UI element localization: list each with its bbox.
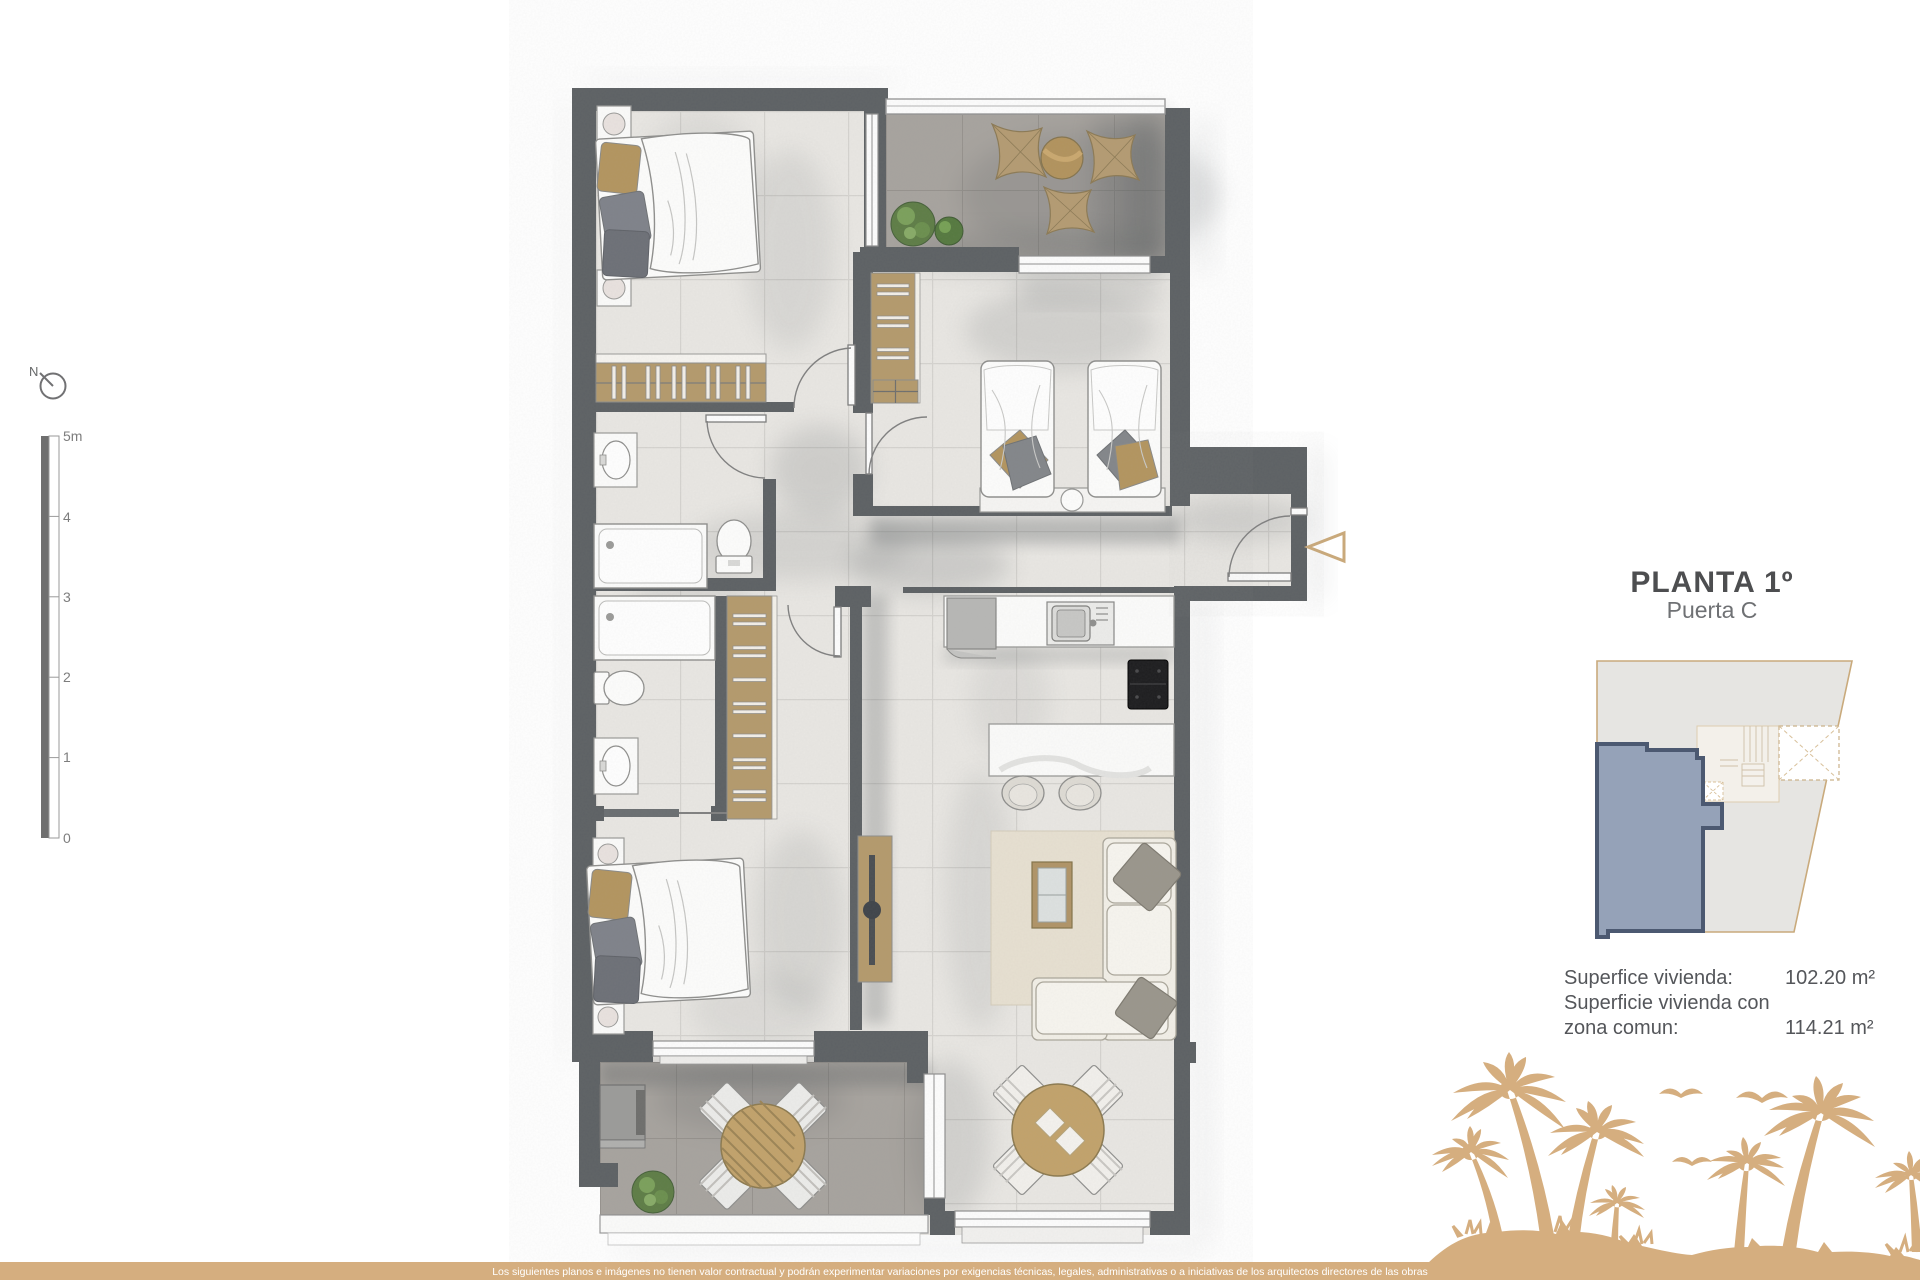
svg-text:PLANTA 1º: PLANTA 1º [1630,566,1793,599]
svg-text:Superficie vivienda con: Superficie vivienda con [1564,992,1770,1014]
svg-text:3: 3 [63,589,71,605]
svg-text:Los siguientes planos e imágen: Los siguientes planos e imágenes no tien… [492,1266,1428,1278]
svg-text:114.21 m²: 114.21 m² [1785,1017,1874,1039]
svg-text:2: 2 [63,669,71,685]
svg-text:5m: 5m [63,428,82,444]
svg-text:N: N [29,364,38,379]
svg-text:4: 4 [63,509,71,525]
svg-text:1: 1 [63,749,71,765]
svg-text:zona comun:: zona comun: [1564,1017,1679,1039]
svg-text:Puerta C: Puerta C [1667,597,1758,623]
svg-text:0: 0 [63,830,71,846]
svg-text:Superfice vivienda:: Superfice vivienda: [1564,967,1733,989]
svg-text:102.20 m²: 102.20 m² [1785,967,1875,989]
